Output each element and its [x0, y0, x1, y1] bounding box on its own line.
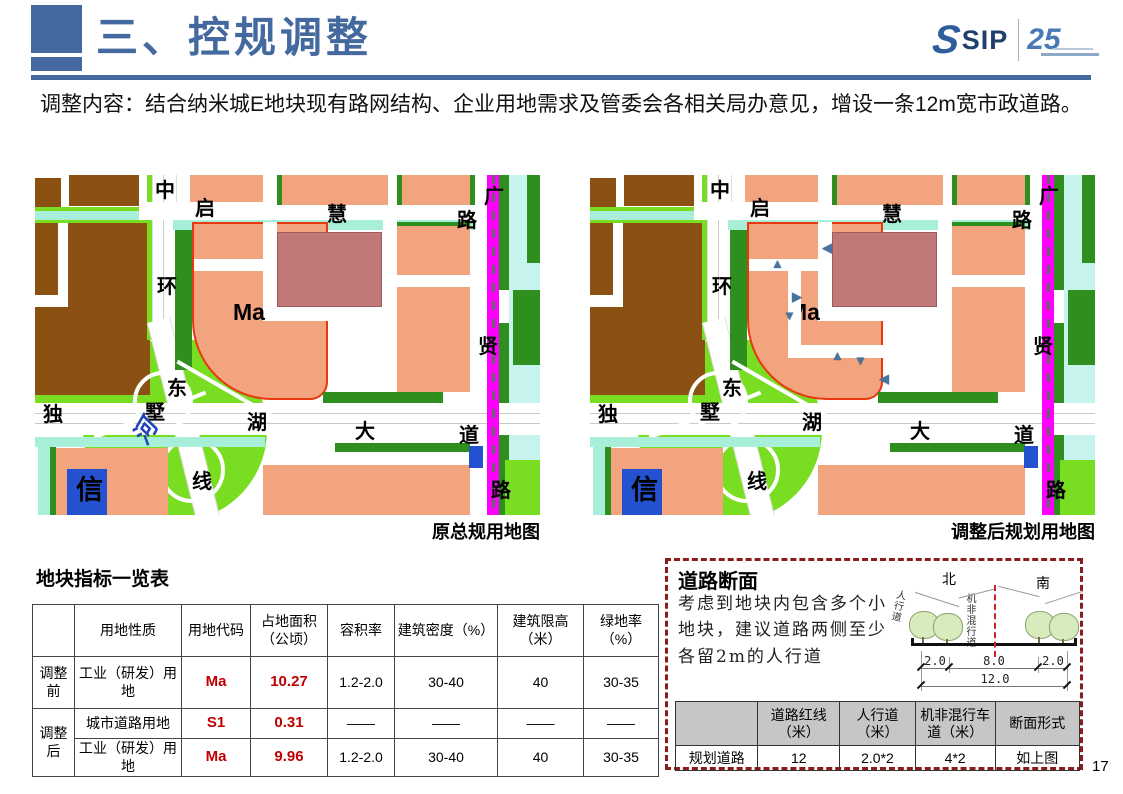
title-decoration-square — [31, 5, 82, 53]
col-header-empty — [676, 702, 758, 746]
stage-cell: 调整前 — [33, 657, 75, 709]
tree-icon — [1049, 613, 1079, 641]
slide: 三、控规调整 S SIP 25 调整内容：结合纳米城E地块现有路网结构、企业用地… — [0, 0, 1123, 794]
road-label-hui: 慧 — [327, 205, 347, 225]
centerline-red-dashed — [994, 585, 996, 657]
density-cell: 30-40 — [395, 739, 498, 777]
map-original: 中 启 慧 路 广 环 Ma 贤 东 独 墅 湖 大 道 线 路 信 河 — [35, 175, 540, 515]
area-cell: 0.31 — [251, 709, 328, 739]
road-marker-icon: ◀ — [879, 372, 889, 385]
use-cell: 工业（研发）用地 — [75, 657, 182, 709]
road-east-horizontal — [397, 275, 470, 287]
curb-right — [1074, 638, 1077, 646]
col-header-sidewalk: 人行道（米） — [840, 702, 916, 746]
code-cell: S1 — [182, 709, 251, 739]
road-brown-notch-v — [58, 223, 68, 295]
far-cell: 1.2-2.0 — [328, 739, 395, 777]
parcel-brown-nw-b — [69, 175, 139, 206]
dim-line-segments — [921, 668, 1068, 669]
road-marker-icon: ◀ — [822, 241, 832, 254]
header-rule — [31, 75, 1091, 80]
parcel-blue-small-east — [469, 446, 483, 468]
road-label-lu-top: 路 — [457, 211, 477, 231]
indicator-table-title: 地块指标一览表 — [36, 564, 169, 591]
road-section-title: 道路断面 — [678, 565, 758, 594]
greenbelt-below-avenue-right — [335, 443, 470, 452]
greenbelt-east-blob-a — [513, 290, 540, 365]
mixed-lane-label: 机非混行道 — [964, 593, 974, 663]
table-row: 调整后 城市道路用地 S1 0.31 —— —— —— —— — [33, 709, 659, 739]
road-label-xian2: 线 — [192, 472, 212, 492]
logo-tagline-bar — [1041, 53, 1099, 56]
col-header-mixed: 机非混行车道（米） — [915, 702, 995, 746]
col-header-redline: 道路红线（米） — [758, 702, 840, 746]
page-number: 17 — [1092, 758, 1109, 775]
parcel-label-xin: 信 — [76, 477, 103, 504]
south-label: 南 — [1036, 573, 1050, 593]
parcel-label-ma: Ma — [233, 301, 265, 324]
col-header-code: 用地代码 — [182, 605, 251, 657]
tree-icon — [933, 613, 963, 641]
logo-tagline-bar2 — [1053, 48, 1093, 50]
road-label-xian: 贤 — [478, 337, 498, 357]
road-label-hu: 湖 — [247, 413, 267, 433]
code-cell: Ma — [182, 657, 251, 709]
curb-left — [911, 638, 914, 646]
green-cell: 30-35 — [584, 739, 659, 777]
road-ne-vertical — [263, 222, 277, 308]
road-ma-stub — [194, 259, 263, 271]
col-header-density: 建筑密度（%） — [395, 605, 498, 657]
map-caption-original: 原总规用地图 — [35, 518, 540, 544]
road-label-zhong: 中 — [155, 181, 175, 201]
intro-text: 调整内容：结合纳米城E地块现有路网结构、企业用地需求及管委会各相关局办意见，增设… — [40, 90, 1102, 120]
leader-line — [1045, 591, 1083, 604]
avenue-lane-line-2 — [35, 423, 540, 424]
map-adjusted-overlay: ◀ ▲ ▶ ▼ ▲ ▼ ◀ — [590, 175, 1095, 515]
sip-logo-text: SIP — [962, 25, 1009, 56]
redline-value: 12 — [758, 746, 840, 771]
sidewalk-value: 2.0*2 — [840, 746, 916, 771]
road-marker-icon: ▼ — [854, 354, 867, 367]
dim-sidewalk-right: 2.0 — [1039, 654, 1067, 668]
area-cell: 9.96 — [251, 739, 328, 777]
canal-sw-column — [38, 447, 50, 515]
road-section-table: 道路红线（米） 人行道（米） 机非混行车道（米） 断面形式 规划道路 12 2.… — [675, 701, 1080, 771]
density-cell: —— — [395, 709, 498, 739]
road-section-box: 道路断面 考虑到地块内包含多个小地块，建议道路两侧至少各留2m的人行道 北 南 … — [665, 558, 1083, 770]
code-cell: Ma — [182, 739, 251, 777]
greenbelt-east-blob-b — [527, 175, 540, 263]
col-header-height: 建筑限高（米） — [498, 605, 584, 657]
logo-divider — [1018, 19, 1019, 61]
sip-logo: S SIP 25 — [933, 14, 1103, 66]
anniversary-logo: 25 — [1027, 25, 1060, 55]
canal-cyan-left — [35, 211, 139, 220]
far-cell: —— — [328, 709, 395, 739]
table-row: 工业（研发）用地 Ma 9.96 1.2-2.0 30-40 40 30-35 — [33, 739, 659, 777]
road-label-lu-bottom: 路 — [491, 481, 511, 501]
density-cell: 30-40 — [395, 657, 498, 709]
road-below-mauve — [263, 307, 397, 321]
road-marker-icon: ▶ — [792, 290, 802, 303]
stage-cell: 调整后 — [33, 709, 75, 777]
col-header-form: 断面形式 — [995, 702, 1079, 746]
mixed-value: 4*2 — [915, 746, 995, 771]
title-decoration-bar — [31, 57, 82, 71]
height-cell: 40 — [498, 739, 584, 777]
leader-line — [915, 592, 959, 607]
new-road-vertical — [788, 263, 801, 351]
road-east-vertical — [383, 220, 397, 311]
parcel-south-mid — [263, 465, 470, 515]
dim-sidewalk-left: 2.0 — [921, 654, 949, 668]
map-canvas: 中 启 慧 路 广 环 Ma 贤 东 独 墅 湖 大 道 线 路 信 — [35, 175, 540, 515]
road-label-huan: 环 — [157, 277, 177, 297]
map-adjusted: 中 启 慧 路 广 环 Ma 贤 东 独 墅 湖 大 道 线 路 信 ◀ ▲ ▶… — [590, 175, 1095, 515]
height-cell: 40 — [498, 657, 584, 709]
parcel-brown-nw-a — [35, 178, 61, 207]
road-section-note: 考虑到地块内包含多个小地块，建议道路两侧至少各留2m的人行道 — [678, 591, 888, 670]
sidewalk-label: 人行道 — [885, 588, 905, 637]
green-cell: 30-35 — [584, 657, 659, 709]
col-header-green: 绿地率（%） — [584, 605, 659, 657]
road-label-guang: 广 — [484, 187, 504, 207]
page-title: 三、控规调整 — [96, 4, 372, 65]
indicator-table: 用地性质 用地代码 占地面积（公顷） 容积率 建筑密度（%） 建筑限高（米） 绿… — [32, 604, 659, 777]
road-label-du: 独 — [43, 405, 63, 425]
sip-swoosh-icon: S — [930, 20, 962, 60]
road-marker-icon: ▲ — [771, 257, 784, 270]
north-label: 北 — [942, 569, 956, 589]
table-row: 调整前 工业（研发）用地 Ma 10.27 1.2-2.0 30-40 40 3… — [33, 657, 659, 709]
dim-total: 12.0 — [968, 672, 1022, 686]
use-cell: 城市道路用地 — [75, 709, 182, 739]
section-header-row: 道路红线（米） 人行道（米） 机非混行车道（米） 断面形式 — [676, 702, 1080, 746]
indicator-header-row: 用地性质 用地代码 占地面积（公顷） 容积率 建筑密度（%） 建筑限高（米） 绿… — [33, 605, 659, 657]
form-value: 如上图 — [995, 746, 1079, 771]
parcel-top-c — [397, 175, 475, 205]
dim-roadway: 8.0 — [974, 654, 1014, 668]
height-cell: —— — [498, 709, 584, 739]
row-label: 规划道路 — [676, 746, 758, 771]
col-header-area: 占地面积（公顷） — [251, 605, 328, 657]
road-label-dong: 东 — [167, 379, 187, 399]
parcel-brown-west — [35, 223, 150, 395]
green-cell: —— — [584, 709, 659, 739]
use-cell: 工业（研发）用地 — [75, 739, 182, 777]
table-row: 规划道路 12 2.0*2 4*2 如上图 — [676, 746, 1080, 771]
dim-line-total — [921, 686, 1068, 687]
road-label-qi: 启 — [195, 199, 215, 219]
road-marker-icon: ▲ — [831, 349, 844, 362]
col-header-far: 容积率 — [328, 605, 395, 657]
parcel-east-2 — [397, 287, 470, 392]
parcel-top-b — [277, 175, 388, 205]
leader-line — [999, 586, 1040, 597]
road-label-da: 大 — [355, 422, 375, 442]
greenbelt-west-column — [175, 220, 192, 370]
area-cell: 10.27 — [251, 657, 328, 709]
road-marker-icon: ▼ — [783, 309, 796, 322]
road-brown-notch-h — [35, 295, 68, 307]
parcel-mauve-block — [277, 232, 382, 307]
road-label-dao: 道 — [459, 426, 479, 446]
map-caption-adjusted: 调整后规划用地图 — [590, 518, 1095, 544]
col-header-use: 用地性质 — [75, 605, 182, 657]
far-cell: 1.2-2.0 — [328, 657, 395, 709]
avenue-lane-line-1 — [35, 413, 540, 414]
col-header-empty — [33, 605, 75, 657]
